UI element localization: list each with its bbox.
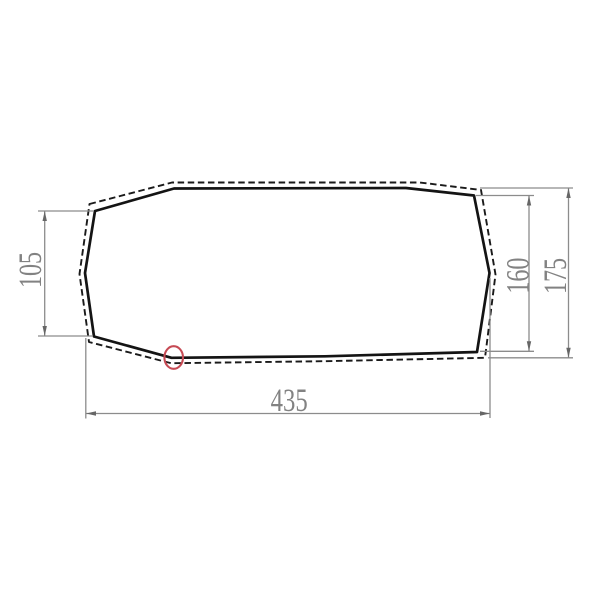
svg-text:160: 160 bbox=[500, 258, 537, 294]
svg-text:105: 105 bbox=[12, 252, 49, 288]
svg-text:435: 435 bbox=[271, 383, 308, 419]
svg-text:175: 175 bbox=[537, 258, 574, 294]
